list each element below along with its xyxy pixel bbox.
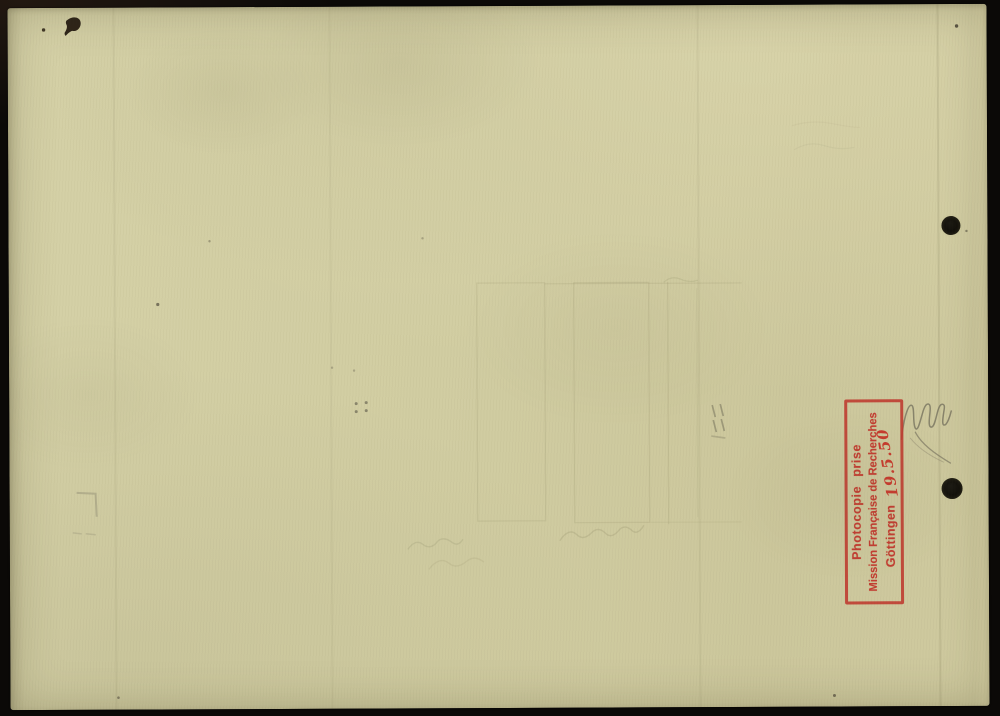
paper-sheet: Photocopie prise Mission Française de Re… [7,4,989,710]
bleedthrough-and-marks-layer [7,4,989,710]
mission-stamp: Photocopie prise Mission Française de Re… [844,399,904,604]
punch-hole-top [941,216,960,235]
ghost-corner-mark [73,493,97,535]
pencil-signature [901,404,951,463]
ghost-table-outline [476,122,862,525]
paper-specks [114,24,969,700]
grey-tick-marks [711,404,725,438]
stamp-city-label: Göttingen [884,505,898,568]
stamp-border-box: Photocopie prise Mission Française de Re… [844,399,904,604]
ink-blot [42,17,81,36]
dot-cluster [331,366,368,413]
stamp-line-1: Photocopie prise [849,402,865,601]
ghost-handwriting [408,525,644,569]
punch-hole-bottom [942,478,963,499]
stamp-line-3: Göttingen19.5.50 [882,402,899,601]
